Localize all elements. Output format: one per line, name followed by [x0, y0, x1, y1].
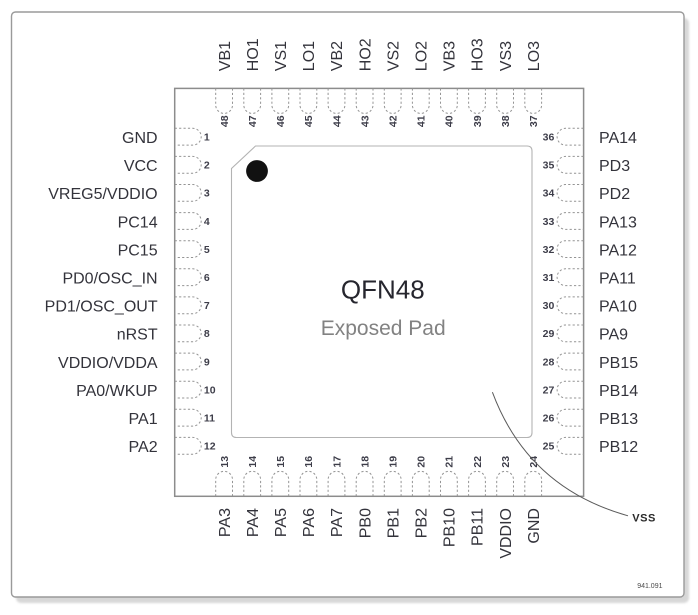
- svg-text:PA3: PA3: [217, 508, 234, 537]
- svg-text:34: 34: [543, 188, 555, 200]
- svg-text:PA5: PA5: [273, 508, 290, 537]
- svg-text:VS3: VS3: [498, 41, 515, 71]
- svg-text:26: 26: [543, 413, 555, 425]
- svg-text:2: 2: [204, 160, 210, 172]
- svg-text:PB10: PB10: [442, 508, 459, 547]
- svg-text:47: 47: [247, 115, 259, 127]
- svg-text:PA14: PA14: [599, 130, 637, 147]
- svg-text:PB1: PB1: [385, 508, 402, 538]
- svg-text:23: 23: [500, 456, 512, 468]
- svg-text:PA9: PA9: [599, 327, 628, 344]
- svg-text:PB14: PB14: [599, 383, 638, 400]
- svg-text:LO1: LO1: [301, 41, 318, 71]
- svg-text:HO2: HO2: [357, 38, 374, 71]
- svg-text:39: 39: [472, 115, 484, 127]
- svg-text:36: 36: [543, 132, 555, 144]
- svg-text:GND: GND: [526, 508, 543, 544]
- svg-text:9: 9: [204, 356, 210, 368]
- svg-text:PA1: PA1: [129, 411, 158, 428]
- svg-text:LO3: LO3: [526, 41, 543, 71]
- svg-text:Exposed Pad: Exposed Pad: [321, 317, 446, 340]
- svg-text:30: 30: [543, 300, 555, 312]
- svg-text:GND: GND: [122, 130, 158, 147]
- svg-text:13: 13: [219, 456, 231, 468]
- svg-text:43: 43: [359, 115, 371, 127]
- svg-text:35: 35: [543, 160, 555, 172]
- svg-text:VDDIO/VDDA: VDDIO/VDDA: [58, 355, 158, 372]
- svg-text:941.091: 941.091: [637, 583, 662, 590]
- svg-text:VB2: VB2: [329, 41, 346, 71]
- svg-text:PB15: PB15: [599, 355, 638, 372]
- svg-text:VCC: VCC: [124, 158, 158, 175]
- svg-text:38: 38: [500, 115, 512, 127]
- svg-text:16: 16: [303, 456, 315, 468]
- svg-text:22: 22: [472, 456, 484, 468]
- svg-text:nRST: nRST: [117, 327, 158, 344]
- svg-text:46: 46: [275, 115, 287, 127]
- svg-text:40: 40: [444, 115, 456, 127]
- svg-text:PA2: PA2: [129, 439, 158, 456]
- svg-text:48: 48: [219, 115, 231, 127]
- svg-text:VDDIO: VDDIO: [498, 508, 515, 559]
- svg-text:33: 33: [543, 216, 555, 228]
- svg-text:12: 12: [204, 441, 216, 453]
- svg-text:42: 42: [388, 115, 400, 127]
- svg-text:7: 7: [204, 300, 210, 312]
- svg-text:PA10: PA10: [599, 299, 637, 316]
- svg-text:PA4: PA4: [245, 508, 262, 537]
- svg-text:PB0: PB0: [357, 508, 374, 538]
- svg-text:HO1: HO1: [245, 38, 262, 71]
- svg-text:PD2: PD2: [599, 186, 630, 203]
- svg-text:PD0/OSC_IN: PD0/OSC_IN: [62, 271, 157, 288]
- svg-text:PA6: PA6: [301, 508, 318, 537]
- svg-text:VB3: VB3: [442, 41, 459, 71]
- svg-text:19: 19: [388, 456, 400, 468]
- svg-text:27: 27: [543, 384, 555, 396]
- svg-text:8: 8: [204, 328, 210, 340]
- svg-text:PA0/WKUP: PA0/WKUP: [76, 383, 158, 400]
- svg-text:14: 14: [247, 456, 259, 468]
- svg-text:3: 3: [204, 188, 210, 200]
- svg-text:29: 29: [543, 328, 555, 340]
- svg-text:QFN48: QFN48: [341, 275, 425, 305]
- svg-text:37: 37: [528, 115, 540, 127]
- svg-text:PB12: PB12: [599, 439, 638, 456]
- svg-text:VS1: VS1: [273, 41, 290, 71]
- svg-text:44: 44: [331, 115, 343, 127]
- svg-text:4: 4: [204, 216, 210, 228]
- svg-text:PB13: PB13: [599, 411, 638, 428]
- svg-text:PA7: PA7: [329, 508, 346, 537]
- svg-text:20: 20: [416, 456, 428, 468]
- svg-text:HO3: HO3: [470, 38, 487, 71]
- svg-text:31: 31: [543, 272, 555, 284]
- svg-text:5: 5: [204, 244, 210, 256]
- svg-text:LO2: LO2: [414, 41, 431, 71]
- svg-text:15: 15: [275, 456, 287, 468]
- svg-text:PB2: PB2: [414, 508, 431, 538]
- svg-text:PC15: PC15: [118, 242, 158, 259]
- svg-text:11: 11: [204, 413, 215, 425]
- svg-text:28: 28: [543, 356, 555, 368]
- svg-text:PD3: PD3: [599, 158, 630, 175]
- svg-text:45: 45: [303, 115, 315, 127]
- svg-text:32: 32: [543, 244, 555, 256]
- svg-text:VB1: VB1: [217, 41, 234, 71]
- svg-text:PA11: PA11: [599, 271, 636, 288]
- svg-text:6: 6: [204, 272, 210, 284]
- svg-text:PA13: PA13: [599, 214, 637, 231]
- svg-text:18: 18: [359, 456, 371, 468]
- svg-text:17: 17: [331, 456, 343, 468]
- svg-text:41: 41: [416, 115, 428, 127]
- svg-text:VS2: VS2: [385, 41, 402, 71]
- svg-text:21: 21: [444, 456, 456, 468]
- svg-text:PC14: PC14: [118, 214, 158, 231]
- svg-text:1: 1: [204, 132, 210, 144]
- svg-text:10: 10: [204, 384, 216, 396]
- svg-text:PD1/OSC_OUT: PD1/OSC_OUT: [45, 299, 158, 316]
- svg-text:PB11: PB11: [470, 508, 487, 546]
- svg-text:VSS: VSS: [632, 513, 656, 525]
- svg-text:VREG5/VDDIO: VREG5/VDDIO: [48, 186, 157, 203]
- svg-text:25: 25: [543, 441, 555, 453]
- svg-text:PA12: PA12: [599, 242, 637, 259]
